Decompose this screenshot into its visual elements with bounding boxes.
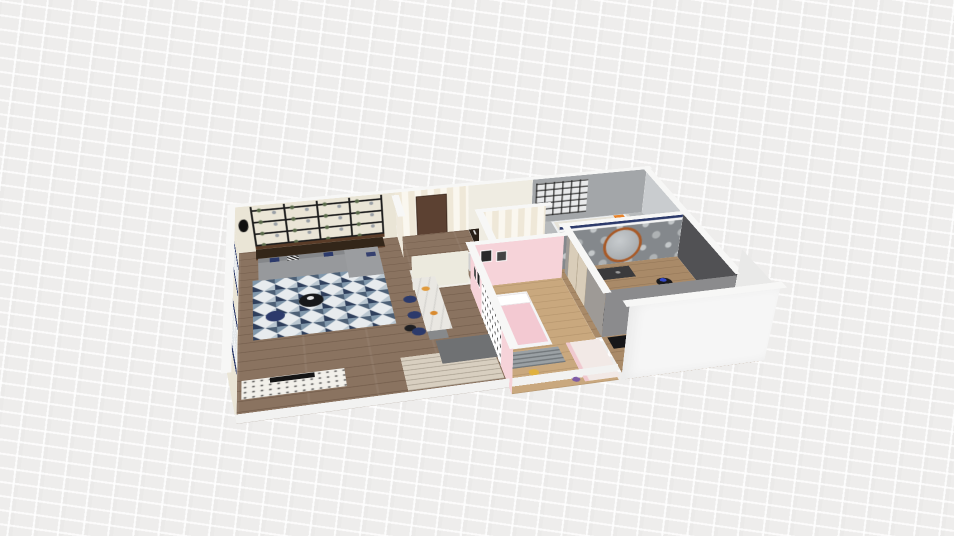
sofa-chaise[interactable] [344, 247, 384, 278]
floorplan-viewport[interactable] [0, 0, 954, 536]
fruit-bowl [430, 311, 439, 316]
app-background: { "app": { "view_label": "3D floor plan … [0, 0, 954, 536]
hallway-north-wall[interactable] [395, 185, 469, 237]
entrance-door[interactable] [416, 194, 448, 237]
fruit-bowl [421, 286, 430, 291]
console-deco [615, 271, 621, 274]
round-mirror[interactable] [602, 225, 644, 264]
wall-frame [496, 250, 507, 261]
cat-wall-decal [238, 219, 250, 232]
